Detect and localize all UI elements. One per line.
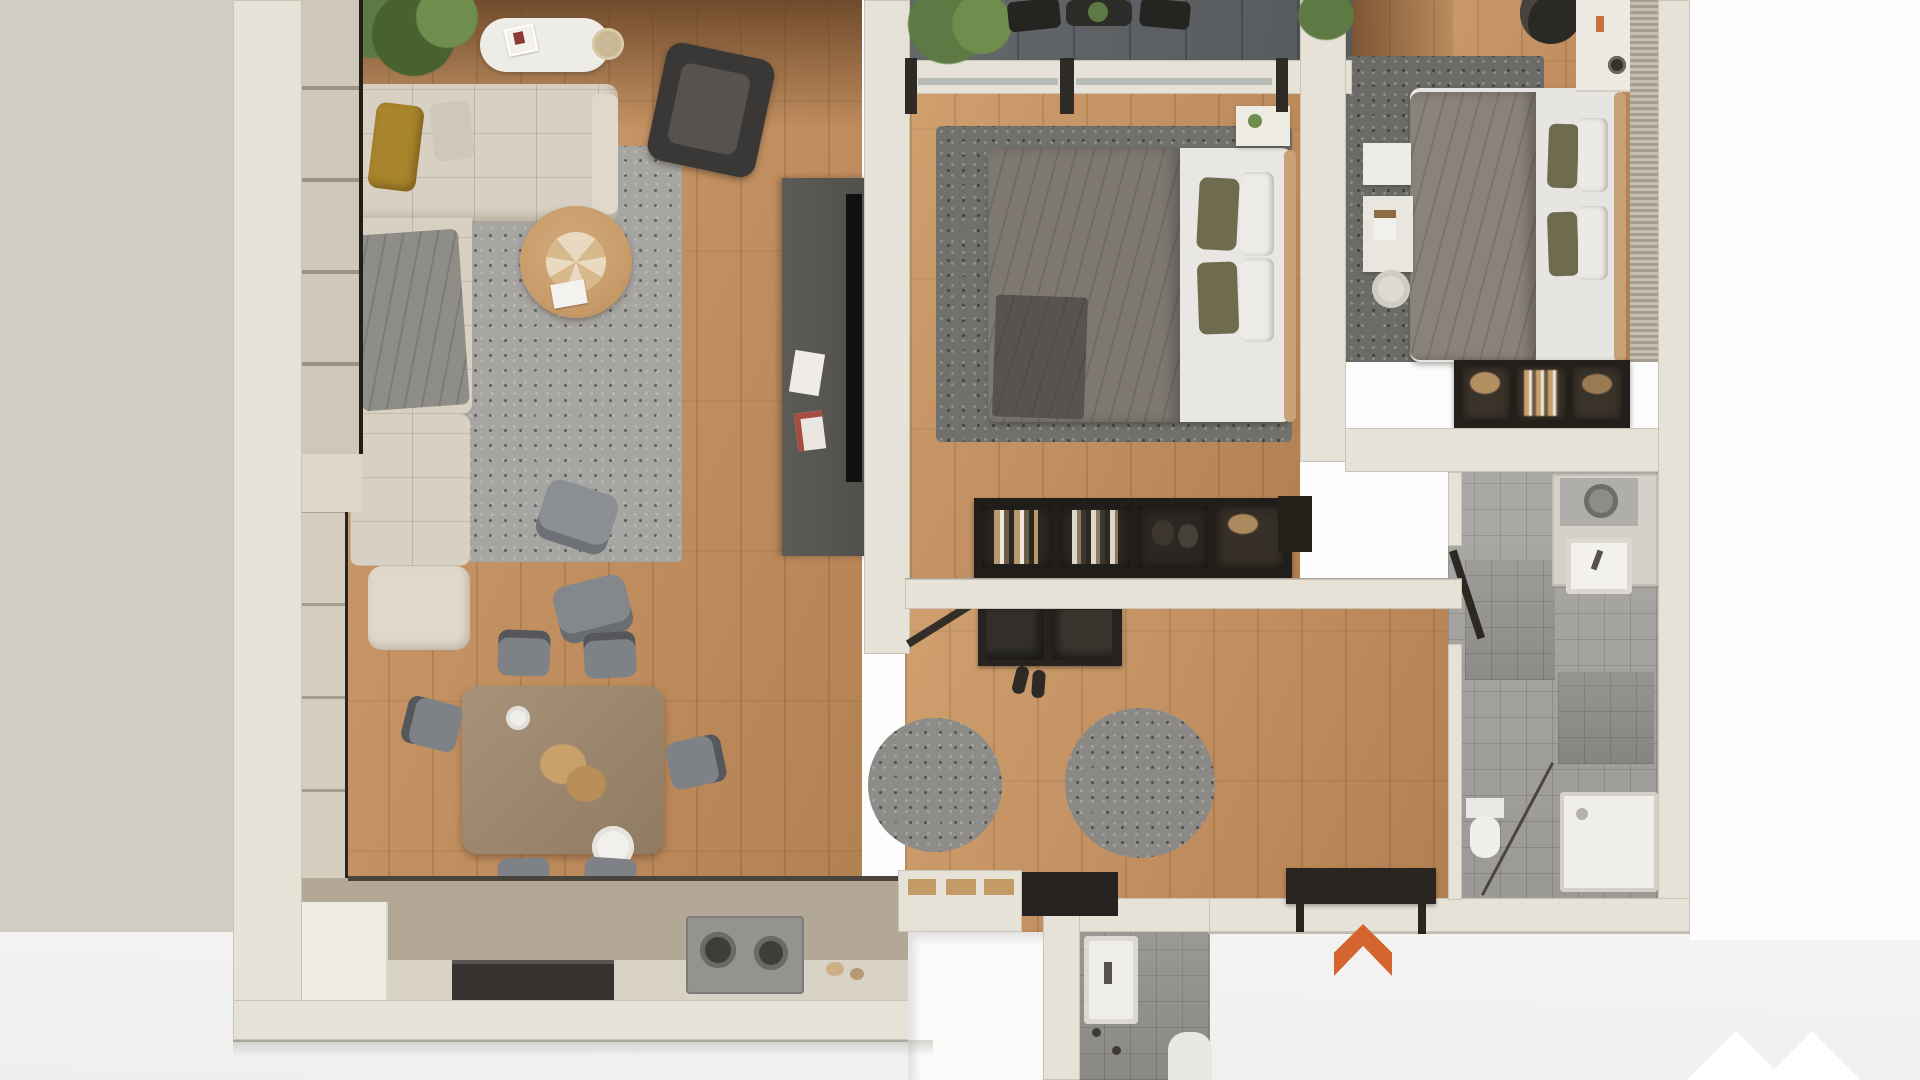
burner-2 bbox=[754, 936, 788, 970]
tv-screen bbox=[846, 194, 862, 482]
wardrobe-clothes-1 bbox=[994, 510, 1038, 564]
bed1-white-pillow-2 bbox=[1240, 258, 1274, 342]
dining-chair-2 bbox=[583, 631, 637, 680]
kitchen-bread bbox=[826, 962, 844, 976]
shoe-bench-leg-2 bbox=[1418, 902, 1426, 934]
wc-control-1 bbox=[1092, 1028, 1101, 1037]
sideboard-left bbox=[300, 0, 362, 454]
console-table bbox=[480, 18, 610, 72]
balcony-door-post-3 bbox=[1276, 58, 1288, 112]
hall-closet-door-1 bbox=[986, 610, 1044, 660]
wall-bathroom-left-upper bbox=[1448, 472, 1462, 546]
sideboard-edge bbox=[359, 0, 363, 454]
bathroom-boiler-dial bbox=[1584, 484, 1618, 518]
left-door-gap bbox=[300, 454, 362, 512]
window-pane-3 bbox=[982, 877, 1016, 897]
cabinet-dish bbox=[1608, 56, 1626, 74]
shoe-bench bbox=[1286, 868, 1436, 904]
bed1-nightstand bbox=[1236, 106, 1290, 146]
bed2-white-pillow-2 bbox=[1578, 206, 1608, 280]
closet-glow-1 bbox=[1470, 372, 1500, 394]
kitchen-counter bbox=[300, 878, 908, 962]
bed2-white-pillow-1 bbox=[1578, 118, 1608, 192]
sofa-ottoman bbox=[368, 566, 470, 650]
slipper-2 bbox=[1031, 670, 1046, 699]
console-magazine-art bbox=[513, 31, 525, 45]
shoe-bench-leg-1 bbox=[1296, 902, 1304, 932]
bed1-olive-pillow-1 bbox=[1196, 177, 1240, 251]
hall-closet-door-2 bbox=[1052, 610, 1112, 660]
closet-glow-3 bbox=[1582, 374, 1612, 394]
bed1-white-pillow-1 bbox=[1240, 172, 1274, 256]
bedroom2-striped-wardrobe bbox=[1630, 0, 1660, 362]
exterior-wall-bottom-left bbox=[233, 1000, 910, 1042]
balcony-door-post-1 bbox=[905, 58, 917, 114]
sofa-blanket bbox=[350, 228, 470, 411]
bg-right-panel bbox=[1690, 0, 1920, 940]
balcony-chair-1 bbox=[1007, 0, 1062, 33]
wall-bedroom2-bottom bbox=[1345, 428, 1690, 472]
bathroom-toilet-bowl bbox=[1470, 816, 1500, 858]
cutout-white bbox=[908, 932, 1043, 1080]
round-rug-large bbox=[1065, 708, 1215, 858]
dining-chair-1 bbox=[497, 629, 551, 677]
bg-beige-panel bbox=[0, 0, 234, 932]
kitchen-tall-cabinets bbox=[300, 512, 348, 882]
shower-drain bbox=[1576, 808, 1588, 820]
hall-dark-cabinet bbox=[1278, 496, 1312, 552]
exterior-wall-right bbox=[1658, 0, 1690, 900]
cabinet-bottle bbox=[1596, 16, 1604, 32]
wall-bedroom1-bedroom2 bbox=[1300, 0, 1346, 462]
bed2-stool bbox=[1372, 270, 1410, 308]
balcony-table-plant bbox=[1088, 2, 1108, 22]
dried-flowers-2 bbox=[566, 766, 606, 802]
balcony-glass-2 bbox=[1076, 78, 1272, 85]
bed2-nightstand-1 bbox=[1363, 143, 1411, 185]
balcony-door-post-2 bbox=[1060, 58, 1074, 114]
balcony-glass-1 bbox=[918, 78, 1058, 85]
sofa-lower-seat bbox=[350, 414, 470, 566]
exterior-wall-left bbox=[233, 0, 302, 1040]
bed2-olive-pillow-1 bbox=[1547, 123, 1579, 188]
wc-doorway-dark bbox=[1022, 872, 1118, 916]
kitchen-counter-edge bbox=[348, 876, 908, 881]
burner-1 bbox=[700, 932, 736, 968]
console-tray bbox=[592, 28, 624, 60]
bathroom-pattern-patch-2 bbox=[1558, 672, 1654, 764]
bed2-nightstand-decor bbox=[1374, 210, 1396, 240]
wall-wc-left bbox=[1043, 898, 1080, 1080]
kitchen-tall-cabinets-edge bbox=[345, 512, 348, 882]
bathroom-toilet-tank bbox=[1466, 798, 1504, 818]
shower-tray bbox=[1560, 792, 1658, 892]
wall-living-bedroom1 bbox=[864, 0, 910, 654]
window-pane-1 bbox=[906, 877, 938, 897]
closet-clothes-2 bbox=[1524, 370, 1558, 416]
sofa-armrest bbox=[592, 94, 618, 214]
bed2-headboard bbox=[1614, 92, 1626, 362]
tv-console-paper-2 bbox=[794, 410, 826, 451]
wardrobe-basket-2 bbox=[1178, 524, 1198, 548]
kitchen-bowl bbox=[850, 968, 864, 980]
dining-cup bbox=[506, 706, 530, 730]
window-pane-2 bbox=[944, 877, 978, 897]
bathroom-sink bbox=[1566, 538, 1632, 594]
round-rug-small bbox=[868, 718, 1002, 852]
bed2-olive-pillow-2 bbox=[1547, 211, 1579, 276]
wall-bathroom-left-lower bbox=[1448, 644, 1462, 900]
floor-plan-render bbox=[0, 0, 1920, 1080]
bed1-nightstand-plant bbox=[1248, 114, 1262, 128]
balcony-chair-2 bbox=[1139, 0, 1191, 30]
wc-faucet bbox=[1104, 962, 1112, 984]
wc-control-2 bbox=[1112, 1046, 1121, 1055]
wall-bathroom-bottom bbox=[1208, 898, 1690, 934]
kitchen-white-cabinet bbox=[300, 902, 388, 1004]
wardrobe-basket-1 bbox=[1152, 520, 1174, 546]
bed1-throw bbox=[992, 294, 1088, 419]
wc-toilet bbox=[1168, 1032, 1212, 1080]
wardrobe-glow bbox=[1228, 514, 1258, 534]
bed1-olive-pillow-2 bbox=[1197, 261, 1239, 334]
wall-bedroom1-bottom bbox=[905, 578, 1462, 609]
bed1-headboard bbox=[1284, 150, 1296, 422]
bed2-duvet bbox=[1410, 92, 1536, 360]
beige-pillow bbox=[429, 100, 475, 162]
wardrobe-clothes-2 bbox=[1072, 510, 1118, 564]
plan-bottom-shadow bbox=[233, 1040, 933, 1056]
